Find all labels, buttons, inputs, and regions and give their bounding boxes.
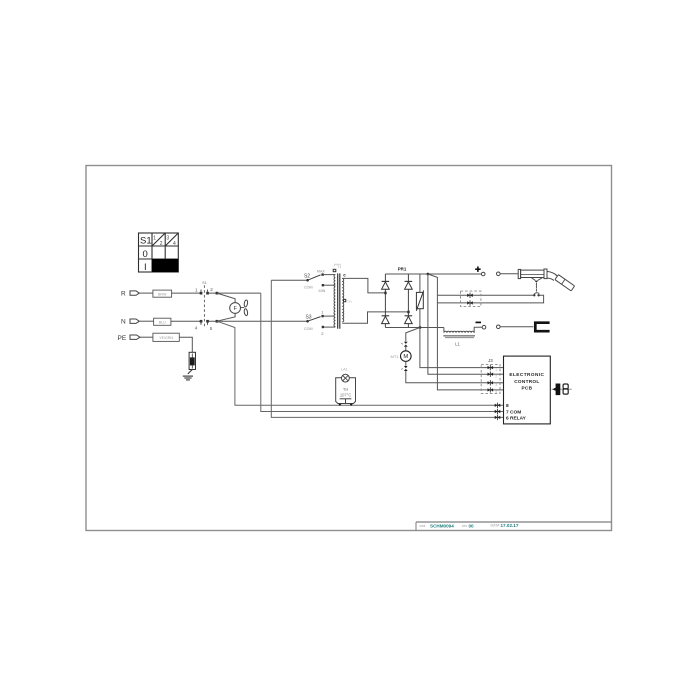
svg-text:N: N (121, 319, 126, 326)
svg-text:2: 2 (495, 374, 497, 378)
svg-text:SCHM0094: SCHM0094 (430, 523, 454, 528)
svg-text:ELECTRONIC: ELECTRONIC (509, 372, 544, 377)
svg-text:8: 8 (506, 403, 509, 409)
svg-text:COM: COM (304, 286, 313, 290)
svg-text:DATA: DATA (491, 523, 501, 527)
svg-text:MT1: MT1 (391, 354, 400, 359)
svg-text:2: 2 (160, 241, 163, 247)
svg-text:17.02.17: 17.02.17 (501, 523, 519, 528)
svg-text:TH: TH (347, 300, 352, 304)
svg-text:PCB: PCB (522, 385, 533, 390)
svg-text:T1: T1 (337, 265, 341, 269)
svg-text:R: R (121, 291, 126, 298)
svg-text:S1: S1 (202, 280, 208, 285)
svg-text:rev: rev (462, 524, 467, 528)
svg-text:YE/GRN: YE/GRN (159, 336, 173, 340)
svg-text:I: I (144, 262, 147, 273)
svg-text:J3: J3 (488, 358, 493, 363)
svg-text:0: 0 (143, 249, 148, 260)
svg-text:CONTROL: CONTROL (514, 379, 539, 384)
svg-text:2: 2 (210, 287, 213, 292)
svg-text:PE: PE (118, 335, 127, 342)
svg-text:4: 4 (195, 325, 198, 330)
svg-text:3: 3 (166, 235, 169, 241)
svg-text:S2: S2 (304, 273, 310, 279)
svg-text:M: M (403, 354, 408, 360)
svg-text:PR1: PR1 (398, 267, 407, 272)
svg-text:S3: S3 (305, 314, 311, 320)
svg-text:MIN: MIN (319, 289, 326, 293)
svg-text:BRW: BRW (158, 292, 167, 296)
svg-text:cod.: cod. (420, 524, 427, 528)
svg-text:107°C: 107°C (340, 392, 351, 397)
svg-text:L1: L1 (455, 342, 460, 347)
svg-text:1: 1 (495, 368, 497, 372)
svg-text:7 COM: 7 COM (506, 410, 521, 416)
svg-text:S1: S1 (140, 236, 152, 247)
svg-text:3: 3 (495, 383, 497, 387)
svg-text:5: 5 (210, 326, 213, 331)
svg-text:BLU: BLU (159, 320, 166, 324)
svg-text:1: 1 (153, 235, 156, 241)
svg-text:LA1: LA1 (341, 368, 348, 372)
svg-text:c: c (343, 272, 346, 277)
svg-text:4: 4 (495, 390, 497, 394)
svg-text:1: 1 (195, 288, 198, 293)
svg-text:6 RELAY: 6 RELAY (506, 416, 527, 422)
svg-text:4: 4 (173, 241, 176, 247)
svg-text:COM: COM (304, 327, 313, 331)
svg-text:MAX: MAX (317, 269, 326, 273)
svg-text:F: F (233, 306, 237, 312)
svg-text:00: 00 (469, 523, 475, 528)
